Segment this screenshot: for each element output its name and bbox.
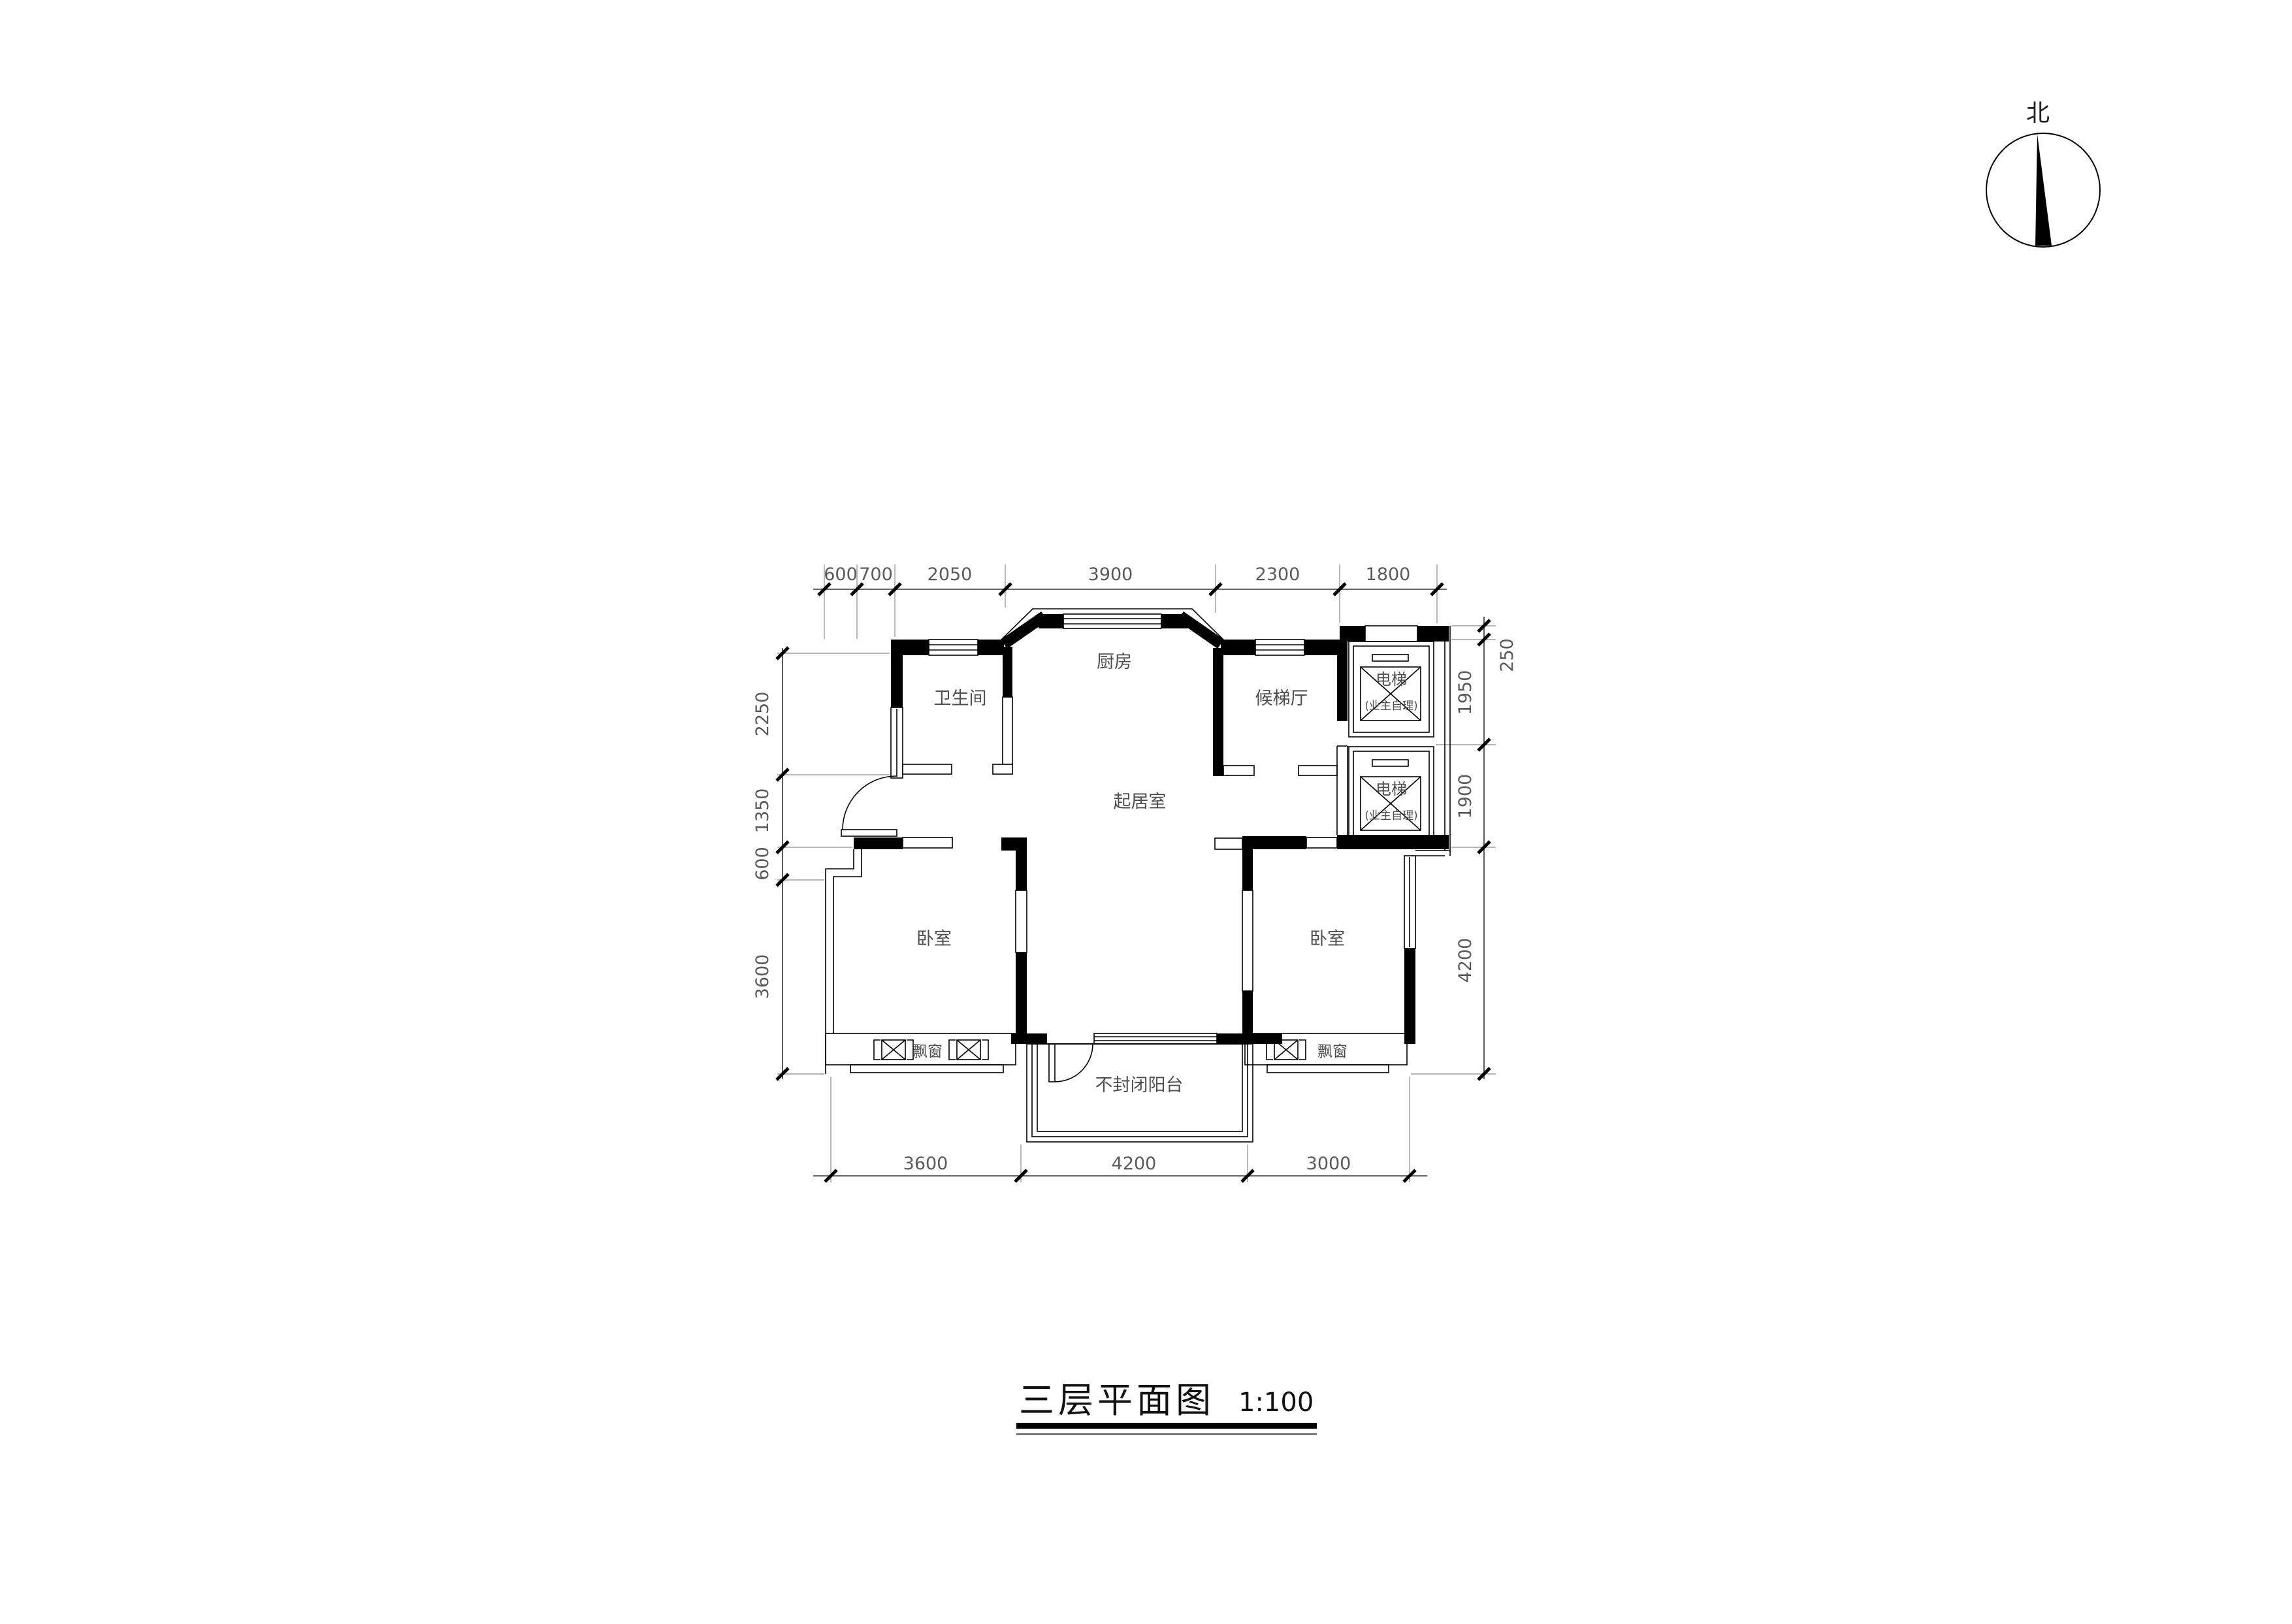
north-indicator: 北 — [1986, 100, 2100, 247]
room-label-kitchen: 厨房 — [1097, 652, 1132, 672]
dim-top-5: 1800 — [1366, 564, 1411, 585]
entry-door-leaf — [841, 830, 897, 836]
room-label-bedroom-right: 卧室 — [1310, 929, 1345, 949]
room-label-bedroom-left: 卧室 — [916, 929, 952, 949]
dim-right-0: 250 — [1497, 638, 1517, 672]
label-bay-window-left: 飘窗 — [912, 1043, 943, 1060]
dim-left-3: 3600 — [752, 954, 773, 999]
walls-solid — [854, 614, 1449, 1044]
dim-top-0: 600 — [824, 564, 858, 585]
dim-bottom-0: 3600 — [903, 1154, 948, 1174]
label-elevator-lower: 电梯 — [1376, 780, 1407, 798]
bedroom-left-outer-wall — [826, 849, 854, 1074]
window-symbol — [949, 1040, 988, 1060]
label-elevator-lower-note: (业主自理) — [1364, 809, 1417, 822]
floor-plan-sheet: 600 700 2050 3900 2300 1800 250 1950 190… — [0, 0, 2292, 1621]
dim-bottom-2: 3000 — [1306, 1154, 1351, 1174]
dim-top-1: 700 — [859, 564, 893, 585]
dim-left-1: 1350 — [752, 788, 773, 834]
window-symbol — [874, 1040, 913, 1060]
balcony-door-leaf — [1049, 1044, 1055, 1082]
drawing-scale: 1:100 — [1238, 1388, 1314, 1418]
dim-left-2: 600 — [752, 847, 773, 881]
dim-right-1: 1950 — [1455, 670, 1476, 715]
room-label-bathroom: 卫生间 — [934, 689, 987, 709]
room-label-balcony: 不封闭阳台 — [1095, 1075, 1184, 1096]
thin-linework — [826, 609, 1450, 1142]
room-label-living-room: 起居室 — [1114, 792, 1167, 812]
label-bay-window-right: 飘窗 — [1317, 1043, 1348, 1060]
floor-plan-drawing: 600 700 2050 3900 2300 1800 250 1950 190… — [0, 0, 2292, 1621]
label-elevator-upper-note: (业主自理) — [1364, 700, 1417, 713]
title-underline-thin — [1016, 1433, 1317, 1435]
dim-top-4: 2300 — [1255, 564, 1300, 585]
entry-door-arc — [843, 776, 896, 830]
title-underline-thick — [1016, 1423, 1317, 1429]
label-elevator-upper: 电梯 — [1376, 670, 1407, 689]
dim-right-3: 4200 — [1455, 938, 1476, 983]
north-label: 北 — [2026, 100, 2050, 127]
drawing-title: 三层平面图 — [1019, 1380, 1215, 1421]
dim-right-2: 1900 — [1455, 774, 1476, 819]
dim-top-3: 3900 — [1088, 564, 1133, 585]
dim-top-2: 2050 — [928, 564, 973, 585]
balcony-door-arc — [1055, 1044, 1093, 1082]
walls-light — [841, 614, 1417, 1082]
dim-bottom-1: 4200 — [1112, 1154, 1157, 1174]
dim-left-0: 2250 — [752, 692, 773, 737]
north-needle-icon — [2035, 134, 2052, 246]
title-block: 三层平面图 1:100 — [1016, 1380, 1317, 1435]
room-label-elevator-hall: 候梯厅 — [1255, 689, 1308, 709]
